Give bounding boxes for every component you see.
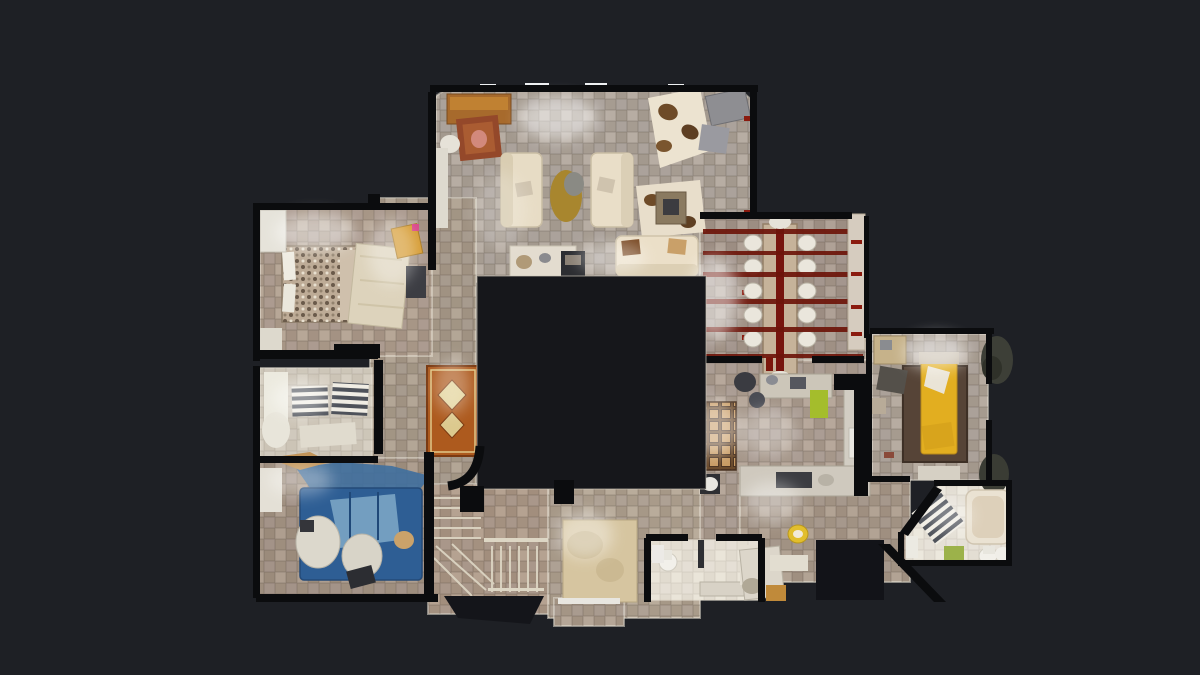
wall-stair-notch-1 <box>460 486 484 512</box>
wall-kitchen-right <box>854 390 868 496</box>
wall-bedroom-right-r2 <box>986 420 992 482</box>
cowhide-spot-3 <box>656 140 672 152</box>
fragment-red-dash-4 <box>851 332 862 336</box>
wall-stair-notch-2 <box>554 480 574 504</box>
vanity-item <box>539 253 551 263</box>
wall-living-left <box>428 92 436 270</box>
green-bath-mat <box>944 546 964 560</box>
light-kitchen <box>740 408 796 456</box>
left-bed-pillow-2 <box>282 284 296 313</box>
centre-plant-top <box>564 172 584 196</box>
bar-stool-2 <box>749 392 765 408</box>
ceiling-beam-2 <box>703 251 863 255</box>
dining-chair-r1 <box>798 235 816 251</box>
light-bedroom-right <box>904 334 968 370</box>
floorplan-viewport[interactable] <box>0 0 1200 675</box>
hole-stair-bottom <box>444 596 544 624</box>
wall-bath-right-right <box>1006 484 1012 566</box>
counter-clutter <box>818 474 834 486</box>
wall-bedroom-left-top <box>258 203 434 210</box>
fragment-red-dash-1 <box>851 240 862 244</box>
wall-bath-right-top <box>934 480 1012 486</box>
wall-sb-left <box>644 538 651 602</box>
wall-bedroom-right-bottom <box>870 476 910 482</box>
dining-chair-r5 <box>798 331 816 347</box>
bath-left-counter <box>299 422 356 448</box>
hall-white-bench <box>770 555 808 571</box>
bar-stool-1 <box>734 372 756 392</box>
tan-stool <box>394 531 414 549</box>
dining-chair-r4 <box>798 307 816 323</box>
plant-bottom-right <box>979 454 1009 494</box>
bath-left-tub <box>262 412 290 448</box>
console-shelf-left <box>436 148 448 228</box>
wall-sb-top-2 <box>716 534 762 541</box>
green-kitchen-mat <box>810 390 828 418</box>
wall-fragment-top-right <box>848 214 865 350</box>
left-bed-pillow-1 <box>282 252 296 281</box>
kettle <box>766 375 778 385</box>
yellow-bucket-inner <box>793 530 803 538</box>
wall-bath-left-outer <box>253 366 260 462</box>
dark-clutter-2 <box>300 520 314 532</box>
wall-bedroom-right-top <box>870 328 994 334</box>
wall-living-top <box>430 85 758 92</box>
wall-bath-right-bottom <box>900 560 1012 566</box>
light-living-bottom <box>578 242 646 274</box>
striped-mat-2 <box>331 382 369 416</box>
wall-blue-bottom <box>256 594 438 602</box>
wall-divider-block <box>334 344 380 358</box>
toilet-tank <box>983 546 995 554</box>
ceiling-beam-1 <box>703 229 863 234</box>
light-bedroom-left <box>275 212 355 252</box>
rug-medallion <box>471 130 487 148</box>
cream-sofa-right-back <box>621 153 633 227</box>
sb-cabinet <box>700 582 744 596</box>
vanity-basket <box>516 255 532 269</box>
front-door-line <box>558 598 620 604</box>
light-runner-hall <box>434 358 470 414</box>
dining-chair-l4 <box>744 307 762 323</box>
light-living-left <box>474 172 526 248</box>
wall-hall-top-notch <box>368 194 380 208</box>
dining-chair-l5 <box>744 331 762 347</box>
yellow-bed-cushion <box>921 422 954 450</box>
wall-bedroom-right-left <box>866 334 872 482</box>
wall-blue-left <box>253 460 260 598</box>
floorplan-svg <box>0 0 1200 675</box>
wall-hall-left-vert <box>374 360 383 454</box>
desk-items <box>880 340 892 350</box>
gray-armchair-2 <box>698 124 729 154</box>
wall-left-outer <box>253 203 260 361</box>
wood-sideboard-top <box>450 97 508 110</box>
dining-chair-r3 <box>798 283 816 299</box>
dining-chair-l3 <box>744 283 762 299</box>
wall-dining-top <box>700 212 852 219</box>
bedside-table <box>872 398 886 414</box>
slippers <box>884 452 894 458</box>
wall-blue-right <box>424 452 434 596</box>
dining-chair-l1 <box>744 235 762 251</box>
light-bedroom-left-rug <box>368 218 416 286</box>
wall-sb-right <box>758 538 765 602</box>
bathtub-inner <box>972 496 1004 538</box>
wall-sb-top-1 <box>646 534 688 541</box>
wall-dining-right <box>864 216 869 338</box>
wall-bedroom-right-r1 <box>986 334 992 384</box>
bath-sink <box>906 536 918 558</box>
stair-hall-floor-tiles <box>428 484 550 614</box>
railing-baluster-1 <box>488 588 544 591</box>
desk-chair <box>876 366 908 394</box>
hole-rear-hall <box>816 540 884 600</box>
coffee-table-decor <box>663 199 679 215</box>
pillow-tan <box>667 238 686 255</box>
beam-remnant <box>766 357 773 371</box>
hall-orange-item <box>766 585 786 601</box>
light-rear-hall <box>744 482 800 522</box>
entry-rug-mottle-2 <box>596 558 624 582</box>
bedroom-bench <box>918 466 960 480</box>
light-bath-left <box>272 380 328 416</box>
stair-railing <box>484 538 548 542</box>
light-entry <box>557 511 613 559</box>
light-living-top <box>518 96 598 140</box>
island-sink <box>790 377 806 389</box>
fragment-red-dash-3 <box>851 305 862 309</box>
wall-kitchen-top-right <box>834 374 868 390</box>
sb-sink <box>652 545 664 563</box>
wall-dining-bottom-right <box>812 356 864 363</box>
light-bath-right <box>930 500 974 532</box>
light-blue-bedroom <box>268 464 332 496</box>
sb-partition <box>698 540 704 568</box>
wall-dining-bottom-left <box>700 356 762 363</box>
courtyard-void <box>477 276 706 489</box>
pink-item <box>412 224 419 231</box>
wall-living-right <box>750 92 757 218</box>
wall-bath-left-bottom <box>256 456 378 463</box>
fragment-red-dash-2 <box>851 272 862 276</box>
